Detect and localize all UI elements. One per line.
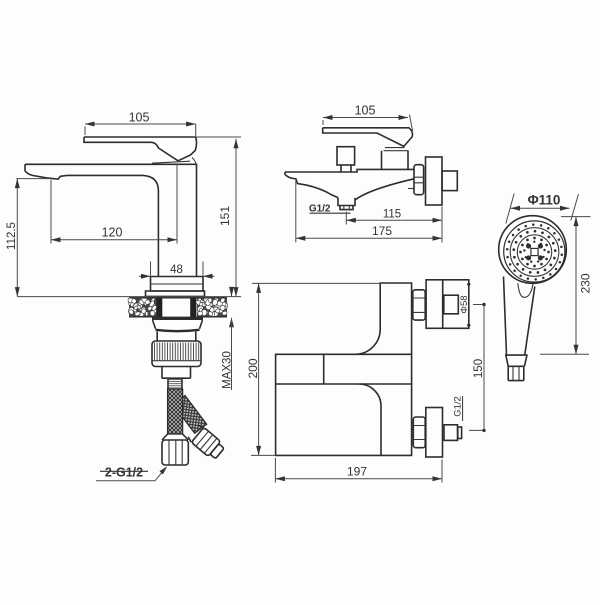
svg-text:197: 197 [347, 465, 367, 479]
svg-text:105: 105 [129, 111, 150, 125]
svg-text:48: 48 [170, 264, 183, 276]
svg-text:230: 230 [579, 273, 593, 293]
svg-text:150: 150 [473, 359, 485, 378]
svg-text:Φ110: Φ110 [528, 193, 561, 208]
svg-text:112.5: 112.5 [6, 222, 18, 250]
svg-text:175: 175 [372, 224, 392, 238]
svg-text:Φ58: Φ58 [459, 295, 470, 313]
svg-text:MAX30: MAX30 [222, 351, 234, 389]
svg-text:151: 151 [218, 206, 232, 226]
svg-text:115: 115 [383, 209, 401, 221]
svg-text:120: 120 [102, 226, 123, 240]
svg-text:105: 105 [355, 104, 376, 118]
svg-text:200: 200 [246, 358, 260, 378]
svg-text:2-G1/2: 2-G1/2 [105, 466, 143, 480]
svg-text:G1/2: G1/2 [452, 396, 463, 417]
